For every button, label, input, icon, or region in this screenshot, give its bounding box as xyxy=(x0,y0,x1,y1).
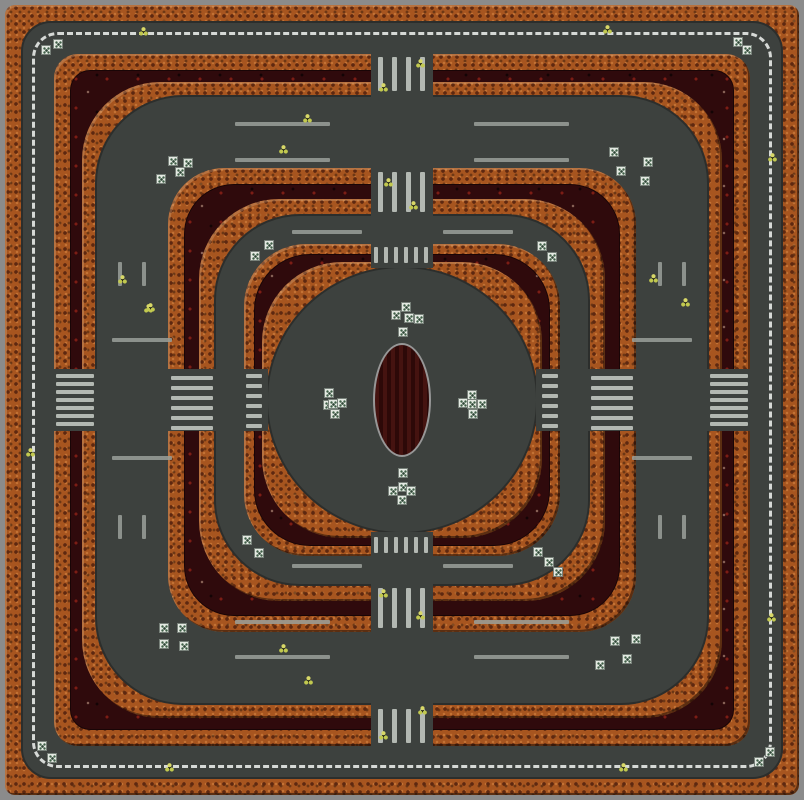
pickup-sprite xyxy=(303,114,312,123)
item-box-sprite xyxy=(175,167,185,177)
item-box-sprite xyxy=(622,654,632,664)
item-box-sprite xyxy=(467,399,477,409)
crossing-bar xyxy=(56,414,94,418)
crossing-bar xyxy=(710,374,748,378)
lane-stripe xyxy=(474,158,569,162)
crossing-bar xyxy=(404,537,408,553)
crossing-bar xyxy=(171,376,213,380)
crossing-bar xyxy=(56,382,94,386)
crossing-west-inner xyxy=(243,369,268,431)
pickup-sprite xyxy=(379,589,388,598)
crossing-bar xyxy=(171,396,213,400)
lane-stripe xyxy=(292,230,362,234)
pickup-sprite xyxy=(26,448,35,457)
item-box-sprite xyxy=(468,409,478,419)
crossing-bar xyxy=(424,537,428,553)
crossing-bar xyxy=(542,414,558,418)
item-box-sprite xyxy=(324,388,334,398)
item-box-sprite xyxy=(406,486,416,496)
crossing-bar xyxy=(246,394,262,398)
pickup-sprite xyxy=(767,613,776,622)
crossing-bar xyxy=(406,588,411,628)
crossing-bar xyxy=(392,57,397,91)
crossing-bar xyxy=(414,247,418,263)
item-box-sprite xyxy=(337,398,347,408)
map-canvas[interactable] xyxy=(0,0,804,800)
lane-stripe xyxy=(118,515,122,539)
lane-stripe xyxy=(474,655,569,659)
lane-stripe xyxy=(112,338,172,342)
item-box-sprite xyxy=(250,251,260,261)
item-box-sprite xyxy=(397,495,407,505)
lane-stripe xyxy=(682,515,686,539)
crossing-east-inner xyxy=(536,369,561,431)
lane-stripe xyxy=(235,122,330,126)
crossing-bar xyxy=(542,404,558,408)
item-box-sprite xyxy=(547,252,557,262)
item-box-sprite xyxy=(742,45,752,55)
lane-stripe xyxy=(292,564,362,568)
item-box-sprite xyxy=(53,39,63,49)
crossing-bar xyxy=(710,398,748,402)
item-box-sprite xyxy=(610,636,620,646)
crossing-bar xyxy=(710,406,748,410)
lane-stripe xyxy=(235,655,330,659)
crossing-bar xyxy=(246,374,262,378)
item-box-sprite xyxy=(537,241,547,251)
crossing-bar xyxy=(56,422,94,426)
lane-stripe xyxy=(443,564,513,568)
crossing-bar xyxy=(246,424,262,428)
crossing-bar xyxy=(710,382,748,386)
pickup-sprite xyxy=(603,25,612,34)
crossing-bar xyxy=(56,374,94,378)
crossing-bar xyxy=(414,537,418,553)
item-box-sprite xyxy=(398,468,408,478)
item-box-sprite xyxy=(477,399,487,409)
item-box-sprite xyxy=(41,45,51,55)
item-box-sprite xyxy=(595,660,605,670)
lane-stripe xyxy=(235,620,330,624)
crossing-bar xyxy=(392,709,397,743)
item-box-sprite xyxy=(159,639,169,649)
pickup-sprite xyxy=(279,145,288,154)
item-box-sprite xyxy=(47,753,57,763)
crossing-bar xyxy=(392,588,397,628)
lane-stripe xyxy=(112,456,172,460)
item-box-sprite xyxy=(609,147,619,157)
item-box-sprite xyxy=(414,314,424,324)
pickup-sprite xyxy=(165,763,174,772)
item-box-sprite xyxy=(159,623,169,633)
crossing-bar xyxy=(246,414,262,418)
pickup-sprite xyxy=(304,676,313,685)
item-box-sprite xyxy=(643,157,653,167)
item-box-sprite xyxy=(156,174,166,184)
crossing-bar xyxy=(406,57,411,91)
crossing-bar xyxy=(424,247,428,263)
crossing-bar xyxy=(374,537,378,553)
crossing-bar xyxy=(246,404,262,408)
crossing-bar xyxy=(591,406,633,410)
lane-stripe xyxy=(474,122,569,126)
pickup-sprite xyxy=(649,274,658,283)
item-box-sprite xyxy=(254,548,264,558)
pickup-sprite xyxy=(619,763,628,772)
item-box-sprite xyxy=(37,741,47,751)
item-box-sprite xyxy=(631,634,641,644)
pickup-sprite xyxy=(139,27,148,36)
crossing-bar xyxy=(246,384,262,388)
pickup-sprite xyxy=(118,275,127,284)
item-box-sprite xyxy=(553,567,563,577)
pickup-sprite xyxy=(681,298,690,307)
item-box-sprite xyxy=(391,310,401,320)
pickup-sprite xyxy=(146,303,155,312)
crossing-bar xyxy=(591,386,633,390)
lane-stripe xyxy=(142,515,146,539)
crossing-bar xyxy=(420,588,425,628)
crossing-bar xyxy=(710,414,748,418)
crossing-bar xyxy=(420,172,425,212)
item-box-sprite xyxy=(242,535,252,545)
crossing-bar xyxy=(542,374,558,378)
item-box-sprite xyxy=(765,747,775,757)
pickup-sprite xyxy=(418,706,427,715)
crossing-bar xyxy=(591,416,633,420)
crossing-bar xyxy=(384,247,388,263)
pickup-sprite xyxy=(416,611,425,620)
item-box-sprite xyxy=(754,757,764,767)
item-box-sprite xyxy=(398,327,408,337)
crossing-bar xyxy=(374,247,378,263)
crossing-bar xyxy=(171,426,213,430)
item-box-sprite xyxy=(640,176,650,186)
item-box-sprite xyxy=(179,641,189,651)
item-box-sprite xyxy=(616,166,626,176)
crossing-bar xyxy=(591,426,633,430)
lane-stripe xyxy=(235,158,330,162)
lane-stripe xyxy=(142,262,146,286)
item-box-sprite xyxy=(330,409,340,419)
crossing-bar xyxy=(171,416,213,420)
crossing-bar xyxy=(406,709,411,743)
crossing-bar xyxy=(542,424,558,428)
crossing-bar xyxy=(710,422,748,426)
pickup-sprite xyxy=(379,731,388,740)
crossing-bar xyxy=(56,390,94,394)
lane-stripe xyxy=(474,620,569,624)
crossing-bar xyxy=(171,406,213,410)
pickup-sprite xyxy=(279,644,288,653)
crossing-bar xyxy=(171,386,213,390)
item-box-sprite xyxy=(401,302,411,312)
lane-stripe xyxy=(658,515,662,539)
lane-stripe xyxy=(658,262,662,286)
pickup-sprite xyxy=(384,178,393,187)
crossing-bar xyxy=(710,390,748,394)
item-box-sprite xyxy=(533,547,543,557)
pickup-sprite xyxy=(409,201,418,210)
lane-stripe xyxy=(632,456,692,460)
crossing-bar xyxy=(394,247,398,263)
item-box-sprite xyxy=(544,557,554,567)
pickup-sprite xyxy=(768,153,777,162)
crossing-bar xyxy=(591,396,633,400)
item-box-sprite xyxy=(168,156,178,166)
item-box-sprite xyxy=(404,313,414,323)
crossing-bar xyxy=(404,247,408,263)
item-box-sprite xyxy=(264,240,274,250)
crossing-bar xyxy=(384,537,388,553)
item-box-sprite xyxy=(177,623,187,633)
crossing-bar xyxy=(56,406,94,410)
crossing-bar xyxy=(542,384,558,388)
crossing-bar xyxy=(56,398,94,402)
crossing-bar xyxy=(394,537,398,553)
center-oval xyxy=(373,343,431,457)
crossing-bar xyxy=(378,172,383,212)
lane-stripe xyxy=(632,338,692,342)
lane-stripe xyxy=(443,230,513,234)
crossing-bar xyxy=(591,376,633,380)
crossing-bar xyxy=(542,394,558,398)
pickup-sprite xyxy=(416,59,425,68)
lane-stripe xyxy=(682,262,686,286)
pickup-sprite xyxy=(379,83,388,92)
